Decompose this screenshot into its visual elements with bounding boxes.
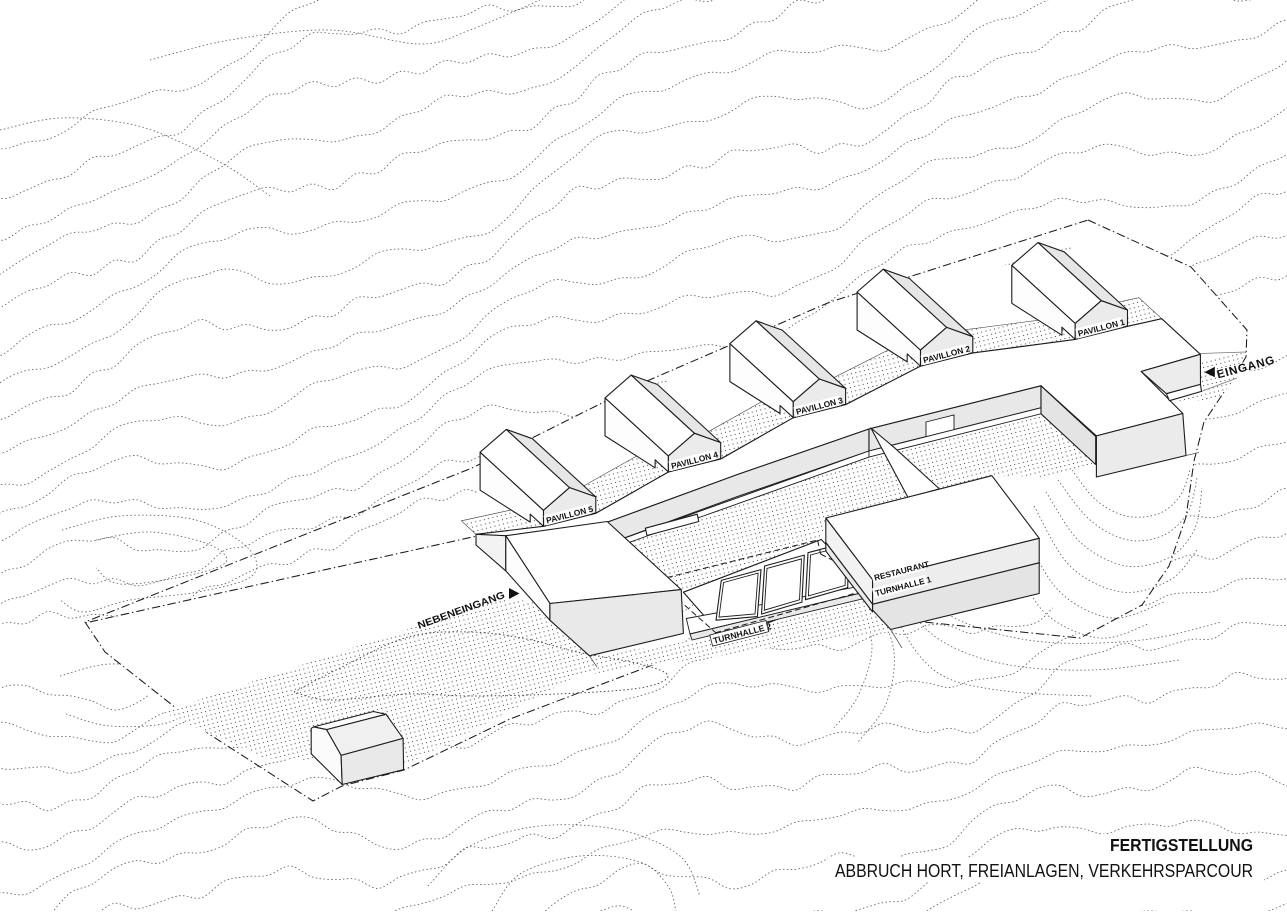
svg-text:FERTIGSTELLUNG: FERTIGSTELLUNG bbox=[1110, 835, 1253, 855]
svg-text:ABBRUCH HORT, FREIANLAGEN, VER: ABBRUCH HORT, FREIANLAGEN, VERKEHRSPARCO… bbox=[835, 861, 1253, 881]
